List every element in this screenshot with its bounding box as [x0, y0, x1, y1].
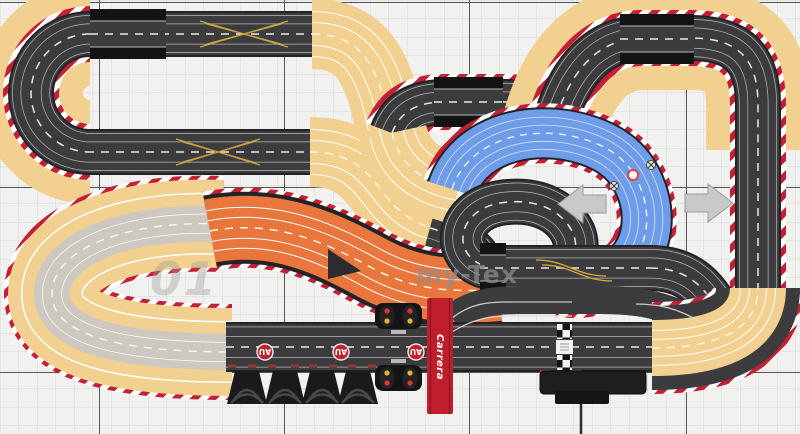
- carrera-bridge-label: Carrera: [434, 334, 445, 380]
- track-badge-label: AU: [410, 347, 422, 356]
- power-connection-box[interactable]: [540, 371, 646, 394]
- start-light-red: [384, 380, 389, 385]
- track-badge-label: AU: [259, 347, 271, 356]
- control-unit-label: [391, 330, 406, 334]
- start-light-housing: [380, 305, 395, 327]
- start-light-yellow: [407, 370, 412, 375]
- start-light-yellow: [384, 370, 389, 375]
- hairpin-curve-left[interactable]: [31, 34, 90, 152]
- connection-point-handle[interactable]: [647, 161, 656, 170]
- start-light-yellow: [407, 318, 412, 323]
- start-light-housing: [403, 367, 418, 389]
- track-planner-canvas: 01 my-Tex AU AU AU Carrera: [0, 0, 800, 434]
- control-unit-label: [391, 359, 406, 363]
- track-badge-label: AU: [335, 347, 347, 356]
- start-light-red: [407, 308, 412, 313]
- watermark-left: 01: [150, 252, 218, 306]
- start-light-red: [407, 380, 412, 385]
- watermark-center: my-Tex: [416, 260, 518, 289]
- selection-handle[interactable]: [628, 170, 638, 180]
- start-light-housing: [403, 305, 418, 327]
- start-light-housing: [380, 367, 395, 389]
- start-finish-checker-top: [557, 324, 572, 339]
- start-light-yellow: [384, 318, 389, 323]
- power-connection-sub: [555, 391, 609, 404]
- connection-point-handle[interactable]: [610, 182, 619, 191]
- start-finish-checker-bottom: [557, 355, 572, 370]
- start-light-red: [384, 308, 389, 313]
